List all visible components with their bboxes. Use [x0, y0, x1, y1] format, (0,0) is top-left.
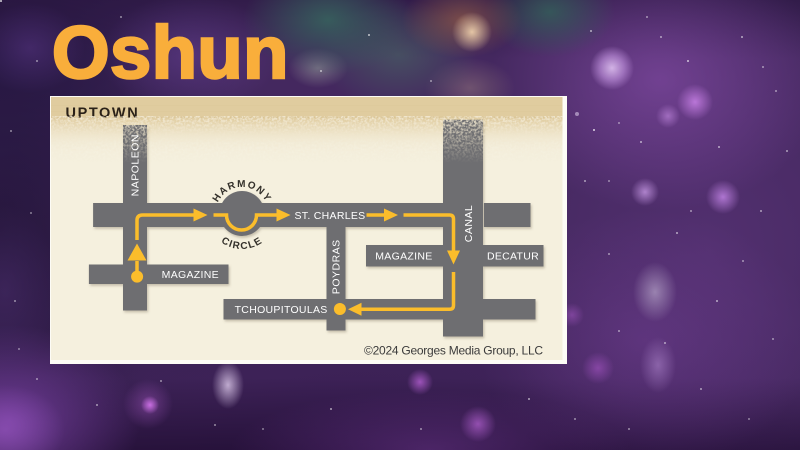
- svg-text:POYDRAS: POYDRAS: [330, 239, 342, 294]
- svg-text:TCHOUPITOULAS: TCHOUPITOULAS: [234, 304, 327, 316]
- svg-text:CANAL: CANAL: [463, 205, 475, 243]
- svg-text:MAGAZINE: MAGAZINE: [375, 251, 432, 263]
- svg-text:NAPOLEON: NAPOLEON: [129, 134, 141, 196]
- svg-text:©2024 Georges Media Group, LLC: ©2024 Georges Media Group, LLC: [364, 344, 543, 358]
- svg-text:MAGAZINE: MAGAZINE: [161, 269, 218, 281]
- svg-text:DECATUR: DECATUR: [486, 250, 538, 262]
- svg-text:ST. CHARLES: ST. CHARLES: [294, 210, 365, 222]
